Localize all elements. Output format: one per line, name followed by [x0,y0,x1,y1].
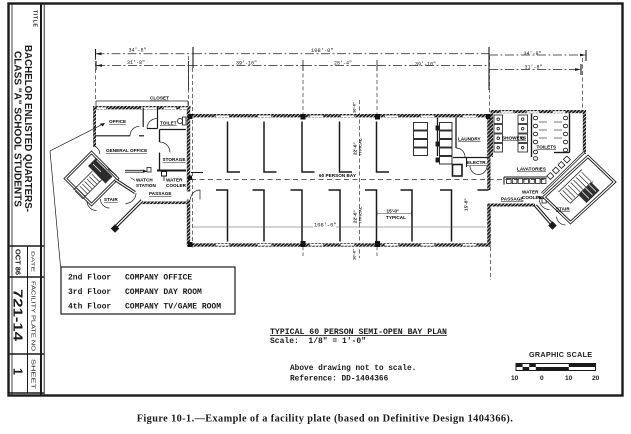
svg-text:31'-8": 31'-8" [525,65,543,71]
svg-text:CLASS "A" SCHOOL STUDENTS: CLASS "A" SCHOOL STUDENTS [12,51,23,207]
svg-text:LAUNDRY: LAUNDRY [458,137,481,142]
svg-text:STAIR: STAIR [104,197,118,202]
svg-text:39'-10": 39'-10" [415,62,436,68]
svg-text:OCT 86: OCT 86 [14,249,23,275]
svg-text:0: 0 [540,375,544,382]
svg-text:TITLE: TITLE [32,10,38,27]
svg-text:10'-0": 10'-0" [352,249,357,260]
svg-text:10: 10 [511,375,519,382]
svg-text:GRAPHIC SCALE: GRAPHIC SCALE [529,350,592,359]
svg-text:WATCH: WATCH [136,178,153,183]
svg-text:Above drawing not to scale.: Above drawing not to scale. [290,365,416,373]
svg-text:FACILITY PLATE NO: FACILITY PLATE NO [30,281,36,351]
svg-text:TYPICAL: TYPICAL [358,206,363,224]
svg-text:2nd Floor: 2nd Floor [68,274,111,283]
svg-text:TYPICAL 60 PERSON SEMI-OPEN BA: TYPICAL 60 PERSON SEMI-OPEN BAY PLAN [270,328,447,337]
svg-text:Figure 10-1.—Example of a faci: Figure 10-1.—Example of a facility plate… [137,414,514,425]
svg-text:BACHELOR ENLISTED QUARTERS-: BACHELOR ENLISTED QUARTERS- [22,45,33,212]
svg-text:1: 1 [11,368,25,375]
svg-text:TYPICAL: TYPICAL [386,215,406,220]
svg-text:15'-8": 15'-8" [464,198,469,211]
svg-text:SHEET: SHEET [30,359,36,389]
svg-text:WATER: WATER [166,178,183,183]
svg-text:TYPICAL: TYPICAL [358,138,363,156]
svg-text:WATER: WATER [522,190,539,195]
svg-text:COMPANY OFFICE: COMPANY OFFICE [125,274,192,283]
svg-text:10'-0": 10'-0" [352,102,357,113]
svg-text:34'-8": 34'-8" [524,51,542,57]
svg-text:DATE: DATE [30,251,36,272]
svg-text:SHOWERS: SHOWERS [502,136,526,141]
svg-text:108'-0": 108'-0" [314,223,337,229]
svg-text:39'-10": 39'-10" [236,61,257,67]
svg-text:10: 10 [565,375,573,382]
svg-text:TOILETS: TOILETS [537,145,557,150]
svg-text:COMPANY TV/GAME ROOM: COMPANY TV/GAME ROOM [125,303,221,312]
svg-text:COMPANY DAY ROOM: COMPANY DAY ROOM [125,288,202,297]
svg-text:28'-4": 28'-4" [334,61,352,67]
svg-text:COOLER: COOLER [166,183,187,188]
svg-text:60 PERSON BAY: 60 PERSON BAY [319,173,356,178]
svg-text:Scale: 1/8" = 1'-0": Scale: 1/8" = 1'-0" [270,337,366,346]
svg-text:4th Floor: 4th Floor [68,303,111,312]
svg-text:ELECTR.: ELECTR. [467,160,487,165]
svg-text:TOILET: TOILET [160,121,177,126]
svg-text:Reference: DD-1404366: Reference: DD-1404366 [290,376,389,384]
svg-text:STATION: STATION [136,183,156,188]
svg-text:20: 20 [592,375,600,382]
svg-text:PASSAGE: PASSAGE [149,191,171,196]
svg-text:PASSAGE: PASSAGE [501,197,523,202]
svg-text:108'-0": 108'-0" [311,48,334,54]
svg-text:CLOSET: CLOSET [150,96,169,101]
svg-text:STORAGE: STORAGE [163,157,186,162]
svg-text:3rd Floor: 3rd Floor [68,288,111,297]
svg-text:34'-8": 34'-8" [129,48,147,54]
svg-text:15'-0": 15'-0" [387,209,400,214]
svg-text:LAVATORIES: LAVATORIES [517,167,546,172]
svg-text:GENERAL OFFICE: GENERAL OFFICE [106,148,147,153]
svg-text:STAIR: STAIR [556,207,570,212]
svg-text:721-14: 721-14 [11,289,25,341]
svg-text:31'-8": 31'-8" [127,60,145,66]
svg-text:OFFICE: OFFICE [109,119,126,124]
